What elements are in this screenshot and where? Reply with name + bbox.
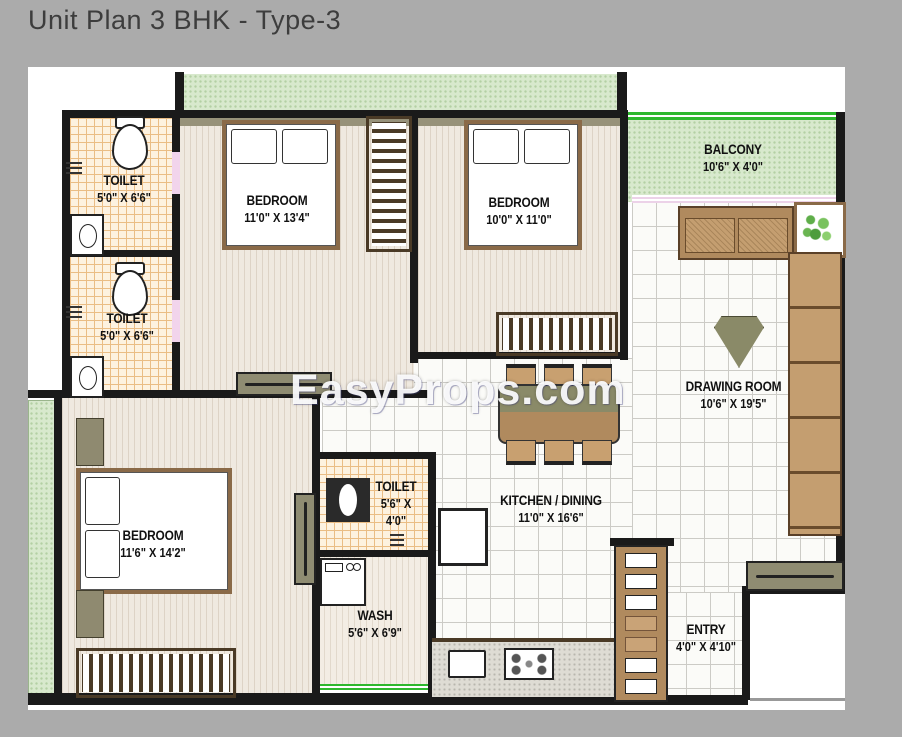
- cabinet-shelf: [625, 658, 657, 673]
- washing-machine-panel: [325, 563, 343, 572]
- cabinet-shelf: [625, 637, 657, 652]
- squat-toilet-pan: [339, 484, 357, 516]
- cabinet-shelf: [625, 574, 657, 589]
- balcony-railing: [627, 112, 836, 121]
- room-size: 4'0": [365, 513, 426, 530]
- wardrobe-bedroom-top-right: [496, 312, 618, 356]
- wall-toilet-small-bottom: [318, 550, 436, 557]
- dining-chair: [506, 440, 536, 465]
- washbasin-bowl: [79, 224, 97, 248]
- cabinet-shelf: [625, 553, 657, 568]
- room-name: DRAWING ROOM: [659, 378, 808, 396]
- pillow: [524, 129, 570, 164]
- entry-label: ENTRY 4'0" X 4'10": [658, 621, 753, 656]
- washing-machine-knob: [353, 563, 361, 571]
- toilet-top-label: TOILET 5'0" X 6'6": [75, 172, 174, 207]
- pillow: [231, 129, 277, 164]
- main-entrance-door: [746, 561, 844, 591]
- washbasin-icon: [70, 356, 104, 398]
- double-bed-top-right: [464, 120, 582, 250]
- watermark: EasyProps.com: [290, 366, 626, 415]
- wardrobe-shaft: [366, 116, 412, 252]
- room-name: KITCHEN / DINING: [475, 492, 626, 510]
- top-ledge-green: [183, 74, 619, 112]
- toilet-small-label: TOILET 5'6" X 4'0": [365, 478, 426, 529]
- sofa-cushion: [685, 218, 735, 253]
- bedroom-bottom-label: BEDROOM 11'6" X 14'2": [89, 527, 217, 562]
- sofa-cushion: [738, 218, 788, 253]
- pillow: [282, 129, 328, 164]
- washing-machine: [320, 558, 366, 606]
- outside-edge-line: [750, 698, 845, 701]
- washbasin-icon: [70, 214, 104, 256]
- toilet-wc-icon: [112, 124, 148, 170]
- room-size: 5'6" X 6'9": [327, 625, 424, 642]
- plant-icon: [801, 209, 833, 245]
- wardrobe-bedroom-bottom: [76, 648, 236, 698]
- washbasin-bowl: [79, 366, 97, 390]
- room-name: TOILET: [365, 478, 426, 496]
- room-name: WASH: [327, 607, 424, 625]
- bedroom-top-left-label: BEDROOM 11'0" X 13'4": [213, 192, 341, 227]
- balcony-label: BALCONY 10'6" X 4'0": [669, 141, 797, 176]
- page-title: Unit Plan 3 BHK - Type-3: [28, 5, 341, 36]
- room-name: TOILET: [77, 310, 177, 328]
- room-name: TOILET: [75, 172, 174, 190]
- pillow: [85, 477, 120, 525]
- room-name: BALCONY: [669, 141, 797, 159]
- room-size: 11'0" X 16'6": [475, 510, 626, 527]
- kitchen-sink: [448, 650, 486, 678]
- room-size: 5'0" X 6'6": [75, 190, 174, 207]
- wall-ledge-left: [175, 72, 184, 114]
- room-name: BEDROOM: [213, 192, 341, 210]
- toilet-mid-label: TOILET 5'0" X 6'6": [77, 310, 177, 345]
- dining-chair: [544, 440, 574, 465]
- cabinet-shelf: [625, 679, 657, 694]
- dining-chair: [582, 440, 612, 465]
- side-table: [76, 418, 104, 466]
- kitchen-dining-label: KITCHEN / DINING 11'0" X 16'6": [475, 492, 626, 527]
- double-bed-top-left: [222, 120, 340, 250]
- drawing-room-label: DRAWING ROOM 10'6" X 19'5": [659, 378, 808, 413]
- wash-label: WASH 5'6" X 6'9": [327, 607, 424, 642]
- two-seater-sofa: [678, 206, 794, 260]
- bedroom-top-right-label: BEDROOM 10'0" X 11'0": [455, 194, 583, 229]
- cabinet-shelf: [625, 616, 657, 631]
- room-size: 10'0" X 11'0": [455, 212, 583, 229]
- room-size: 10'6" X 19'5": [659, 396, 808, 413]
- pillow: [473, 129, 519, 164]
- bedroom-bottom-door: [294, 493, 316, 585]
- squat-toilet: [326, 478, 370, 522]
- floorplan-page: { "title": "Unit Plan 3 BHK - Type-3", "…: [0, 0, 902, 737]
- room-size: 11'6" X 14'2": [89, 545, 217, 562]
- room-size: 11'0" X 13'4": [213, 210, 341, 227]
- wall-bedroom-bottom-left: [54, 394, 62, 698]
- wall-bedroom2-right: [620, 110, 628, 360]
- cabinet-shelf: [625, 595, 657, 610]
- room-name: BEDROOM: [89, 527, 217, 545]
- wall-top: [62, 110, 627, 118]
- shower-icon: [390, 534, 404, 548]
- planter-box: [794, 202, 846, 258]
- room-name: BEDROOM: [455, 194, 583, 212]
- room-size: 10'6" X 4'0": [669, 159, 797, 176]
- wash-utility-edge: [318, 684, 430, 693]
- room-size: 5'6" X: [365, 496, 426, 513]
- room-name: ENTRY: [658, 621, 753, 639]
- room-size: 4'0" X 4'10": [658, 639, 753, 656]
- wall-toilet-small-top: [318, 452, 436, 459]
- side-table: [76, 590, 104, 638]
- stove: [504, 648, 554, 680]
- room-size: 5'0" X 6'6": [77, 328, 177, 345]
- wall-ledge-right: [617, 72, 627, 114]
